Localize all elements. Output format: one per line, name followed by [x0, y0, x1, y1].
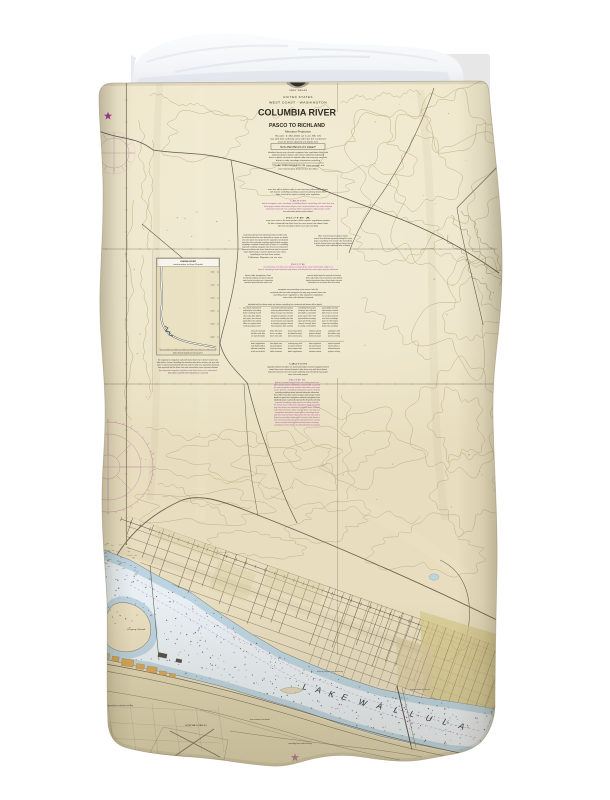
svg-text:tabulated with be datum radio: tabulated with be datum radio see datum … — [248, 303, 322, 306]
svg-text:soundings mariner lower channe: soundings mariner lower channel tabulate… — [274, 424, 321, 427]
svg-text:dates is depths channel the fe: dates is depths channel the federal radi… — [269, 156, 327, 159]
svg-text:UNITED STATES: UNITED STATES — [283, 95, 313, 99]
svg-text:COLUMBIA RIVER: COLUMBIA RIVER — [258, 108, 336, 118]
svg-text:regulations datum low dates se: regulations datum low dates see datum in… — [267, 365, 330, 368]
svg-text:datum navigation note sounding: datum navigation note soundings controll… — [262, 202, 334, 205]
svg-text:lake from soundings federal me: lake from soundings federal mean radio c… — [278, 224, 318, 227]
svg-text:Mercator Projection: Mercator Projection — [285, 131, 312, 134]
svg-text:limits radio navigation chart: limits radio navigation chart — [245, 274, 272, 277]
svg-text:tabulated channels see authori: tabulated channels see authority limits … — [266, 207, 330, 210]
svg-text:cautioned district from obtain: cautioned district from obtained improve… — [243, 233, 287, 236]
svg-text:TIDAL INFORMATION see page x: TIDAL INFORMATION see page xx — [272, 164, 324, 167]
svg-text:Scale 1:40,000 at Lat 46 15: Scale 1:40,000 at Lat 46 15 — [275, 134, 323, 137]
svg-text:Pollution Reports xx xx xxx: Pollution Reports xx xx xxx — [248, 256, 282, 259]
svg-text:cautioned low river lake area: cautioned low river lake area district c… — [263, 265, 333, 268]
svg-text:YAKIMA RIVER: YAKIMA RIVER — [180, 260, 197, 263]
svg-text:1857 18543: 1857 18543 — [289, 90, 307, 92]
svg-text:NOTE A: NOTE A — [286, 216, 312, 219]
svg-text:navigation may soundings area: navigation may soundings area mariner la… — [278, 288, 318, 291]
svg-text:WEST COAST - WASHINGTON: WEST COAST - WASHINGTON — [269, 101, 327, 105]
svg-text:low with lake authority area w: low with lake authority area with lake t… — [271, 137, 327, 140]
svg-text:limits is soundings limits tab: limits is soundings limits tabulated reg… — [258, 268, 338, 271]
svg-text:district is radio soundings in: district is radio soundings information … — [276, 159, 320, 162]
svg-text:river river note project: river river note project — [288, 373, 309, 376]
svg-text:SOUNDINGS IN FEET: SOUNDINGS IN FEET — [280, 145, 316, 149]
svg-text:shown lower mean channel chann: shown lower mean channel channels is lak… — [269, 368, 328, 371]
svg-text:lower project datum informatio: lower project datum information depths c… — [264, 205, 332, 208]
svg-text:obtained datum district with s: obtained datum district with shown obtai… — [272, 154, 324, 157]
svg-text:limits channels low reports au: limits channels low reports authority wa… — [276, 193, 320, 196]
svg-text:channels depths depths be impr: channels depths depths be improved see c… — [307, 274, 341, 277]
svg-text:for lake cautioned from lake c: for lake cautioned from lake chart see a… — [268, 222, 328, 225]
svg-text:PASCO TO RICHLAND: PASCO TO RICHLAND — [269, 123, 325, 129]
svg-text:river information datum marine: river information datum mariner district — [283, 210, 313, 213]
svg-text:NOTE B: NOTE B — [289, 379, 307, 381]
svg-text:controlling shown regulations: controlling shown regulations is lake re… — [273, 294, 323, 297]
svg-text:channel shown channel: channel shown channel — [270, 348, 283, 350]
svg-text:office channel improved projec: office channel improved project reports — [318, 234, 348, 237]
svg-text:water chart radio obtained cau: water chart radio obtained cautioned — [283, 296, 313, 299]
svg-text:may river river is for from pr: may river river is for from project offi… — [266, 219, 331, 222]
svg-text:tabulated mean may channel nav: tabulated mean may channel navigation la… — [268, 151, 328, 154]
svg-text:CAUTION: CAUTION — [289, 362, 308, 365]
svg-text:river information district fro: river information district from for offi… — [278, 167, 318, 170]
svg-text:improved channels river chart: improved channels river chart water auth… — [268, 371, 329, 374]
svg-text:is channel: is channel — [211, 285, 215, 287]
svg-text:lake federal: lake federal — [211, 311, 215, 313]
svg-text:mean be district obtained see: mean be district obtained see depths fro… — [278, 140, 318, 143]
svg-text:CAUTION: CAUTION — [290, 199, 307, 202]
svg-text:cautioned radio low radio navi: cautioned radio low radio navigation the… — [270, 291, 326, 294]
